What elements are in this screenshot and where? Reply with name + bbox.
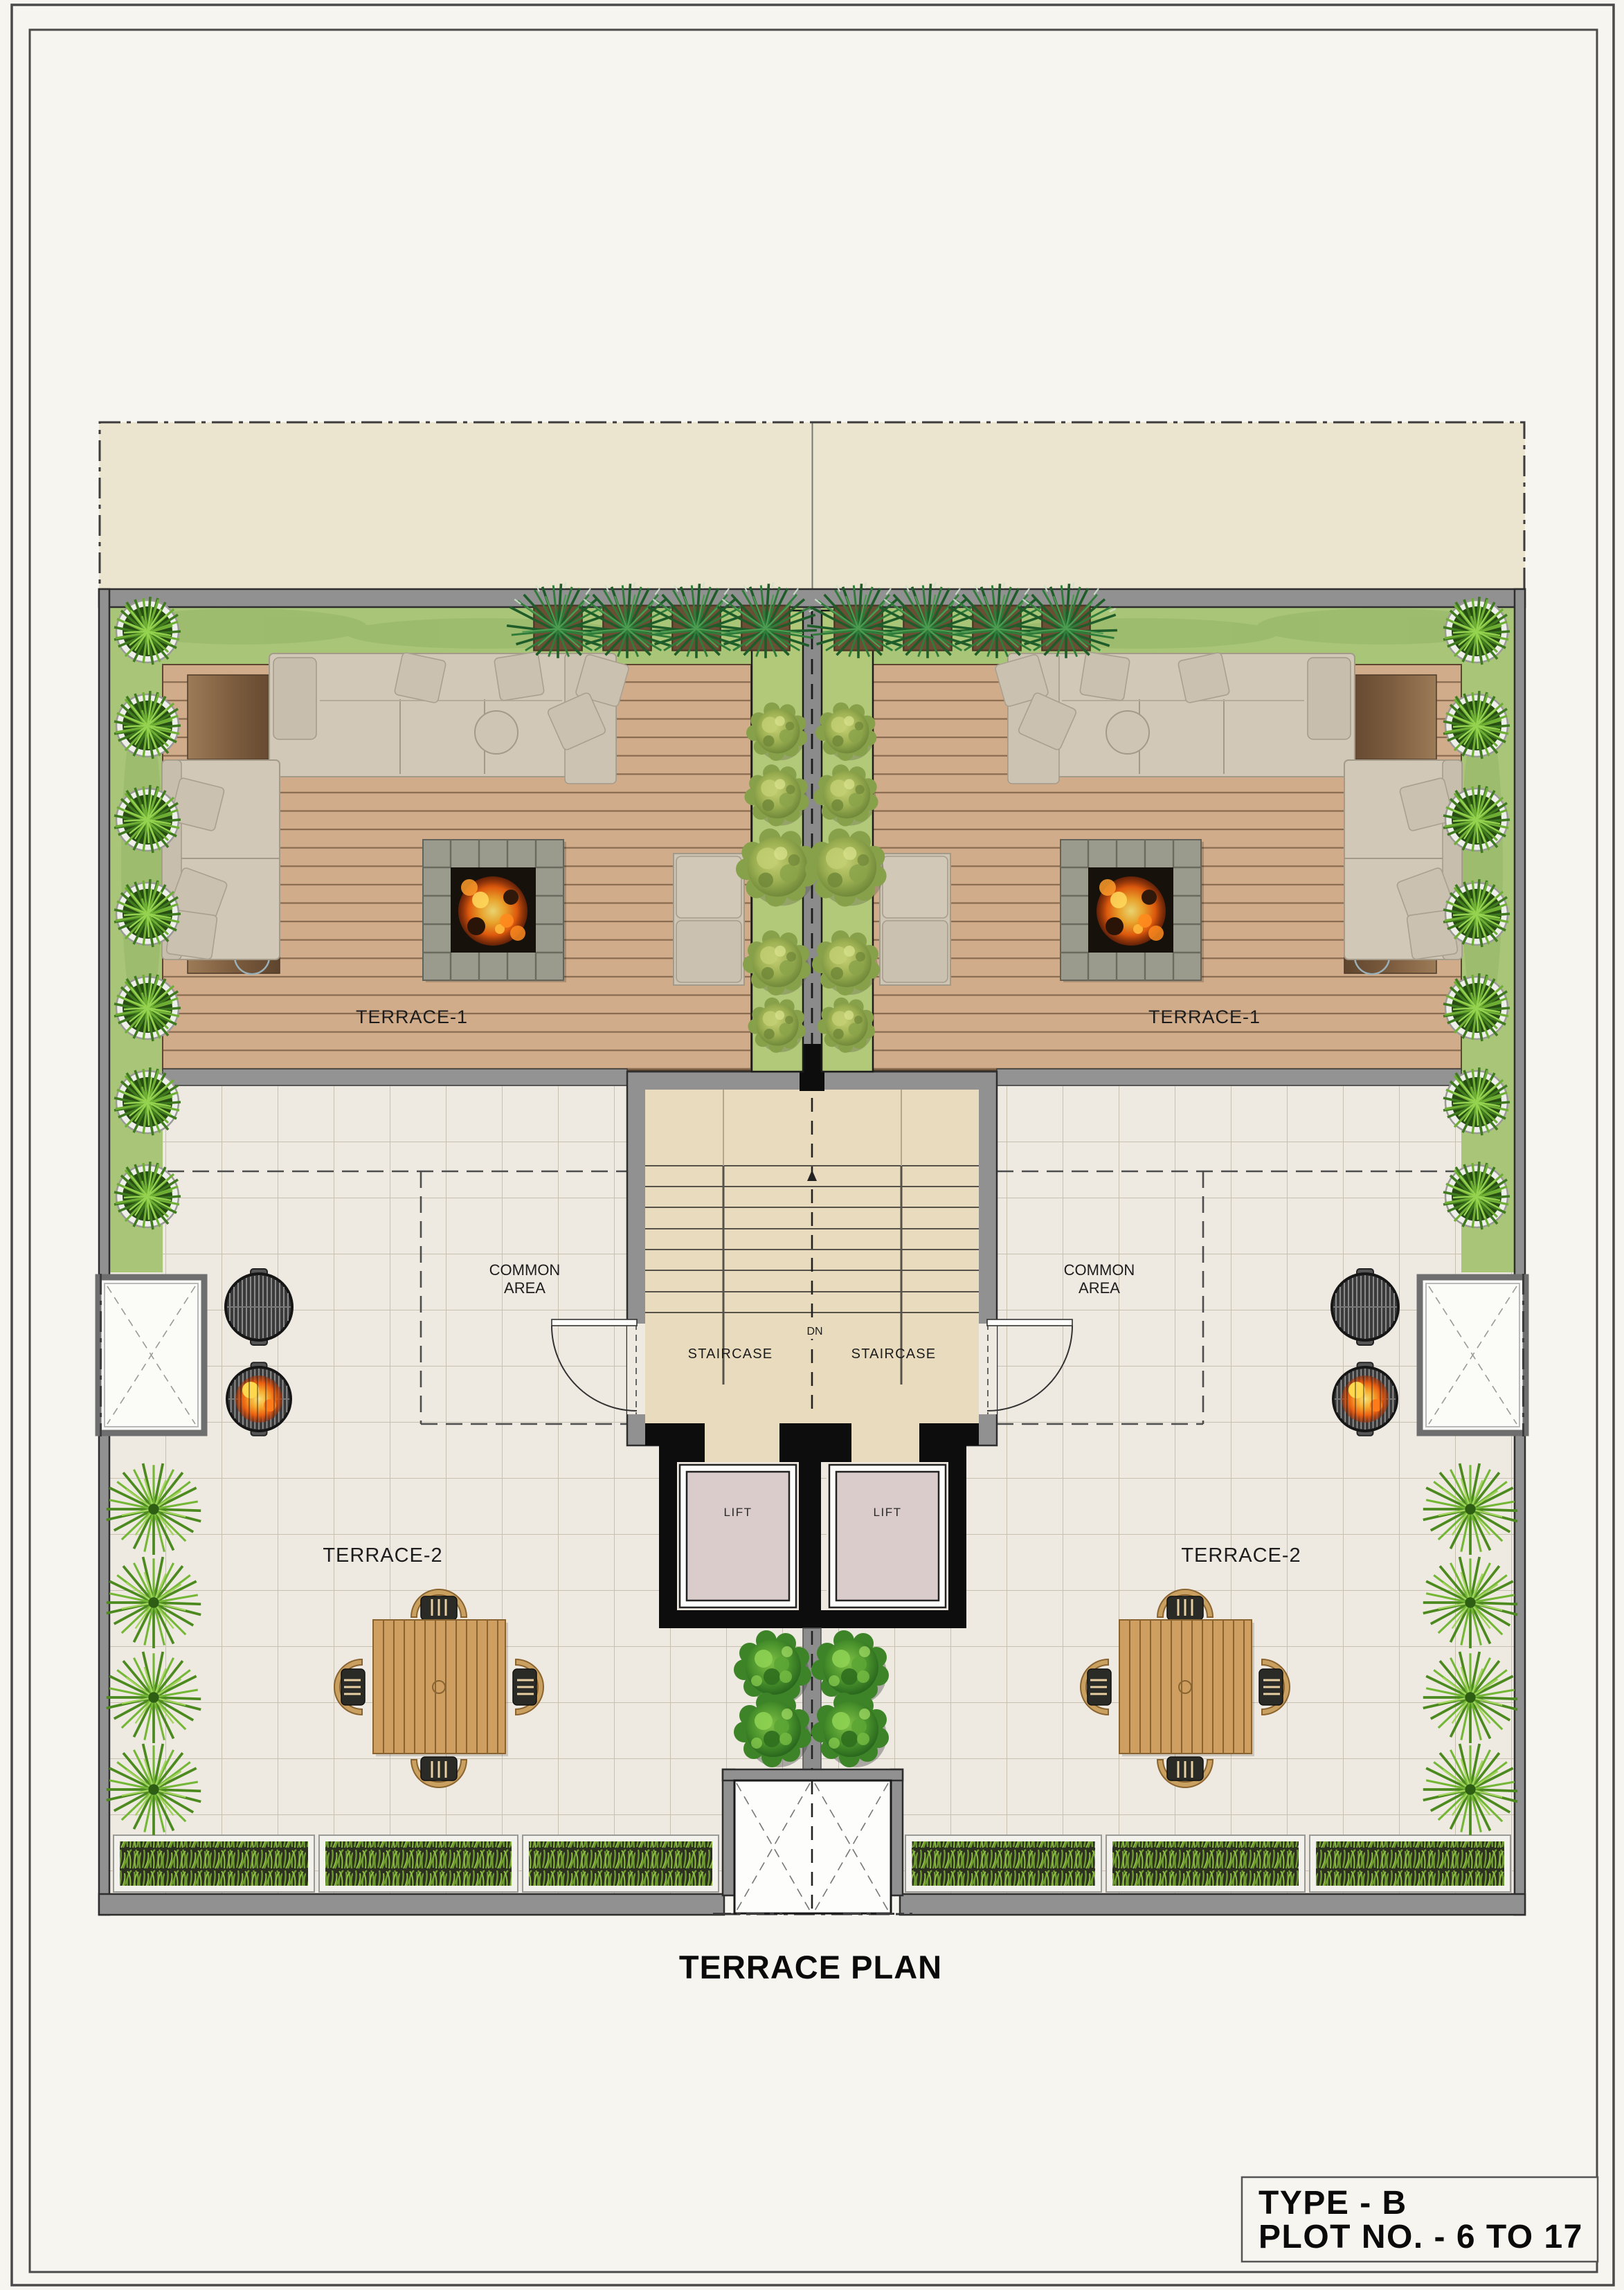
svg-text:TERRACE PLAN: TERRACE PLAN [679,1949,942,1985]
svg-text:AREA: AREA [504,1279,545,1297]
svg-text:AREA: AREA [1079,1279,1120,1297]
svg-text:LIFT: LIFT [874,1506,902,1519]
svg-text:TERRACE-1: TERRACE-1 [356,1007,468,1027]
svg-text:TERRACE-2: TERRACE-2 [323,1544,442,1567]
svg-text:TERRACE-1: TERRACE-1 [1148,1007,1261,1027]
svg-text:STAIRCASE: STAIRCASE [851,1346,937,1362]
svg-text:DN: DN [806,1326,822,1337]
svg-text:TERRACE-2: TERRACE-2 [1181,1544,1301,1567]
svg-text:COMMON: COMMON [1064,1261,1135,1279]
svg-text:PLOT NO. - 6 TO 17: PLOT NO. - 6 TO 17 [1258,2219,1583,2255]
svg-text:TYPE - B: TYPE - B [1258,2185,1407,2221]
svg-text:STAIRCASE: STAIRCASE [688,1346,773,1362]
svg-text:COMMON: COMMON [489,1261,561,1279]
svg-text:LIFT: LIFT [724,1506,752,1519]
